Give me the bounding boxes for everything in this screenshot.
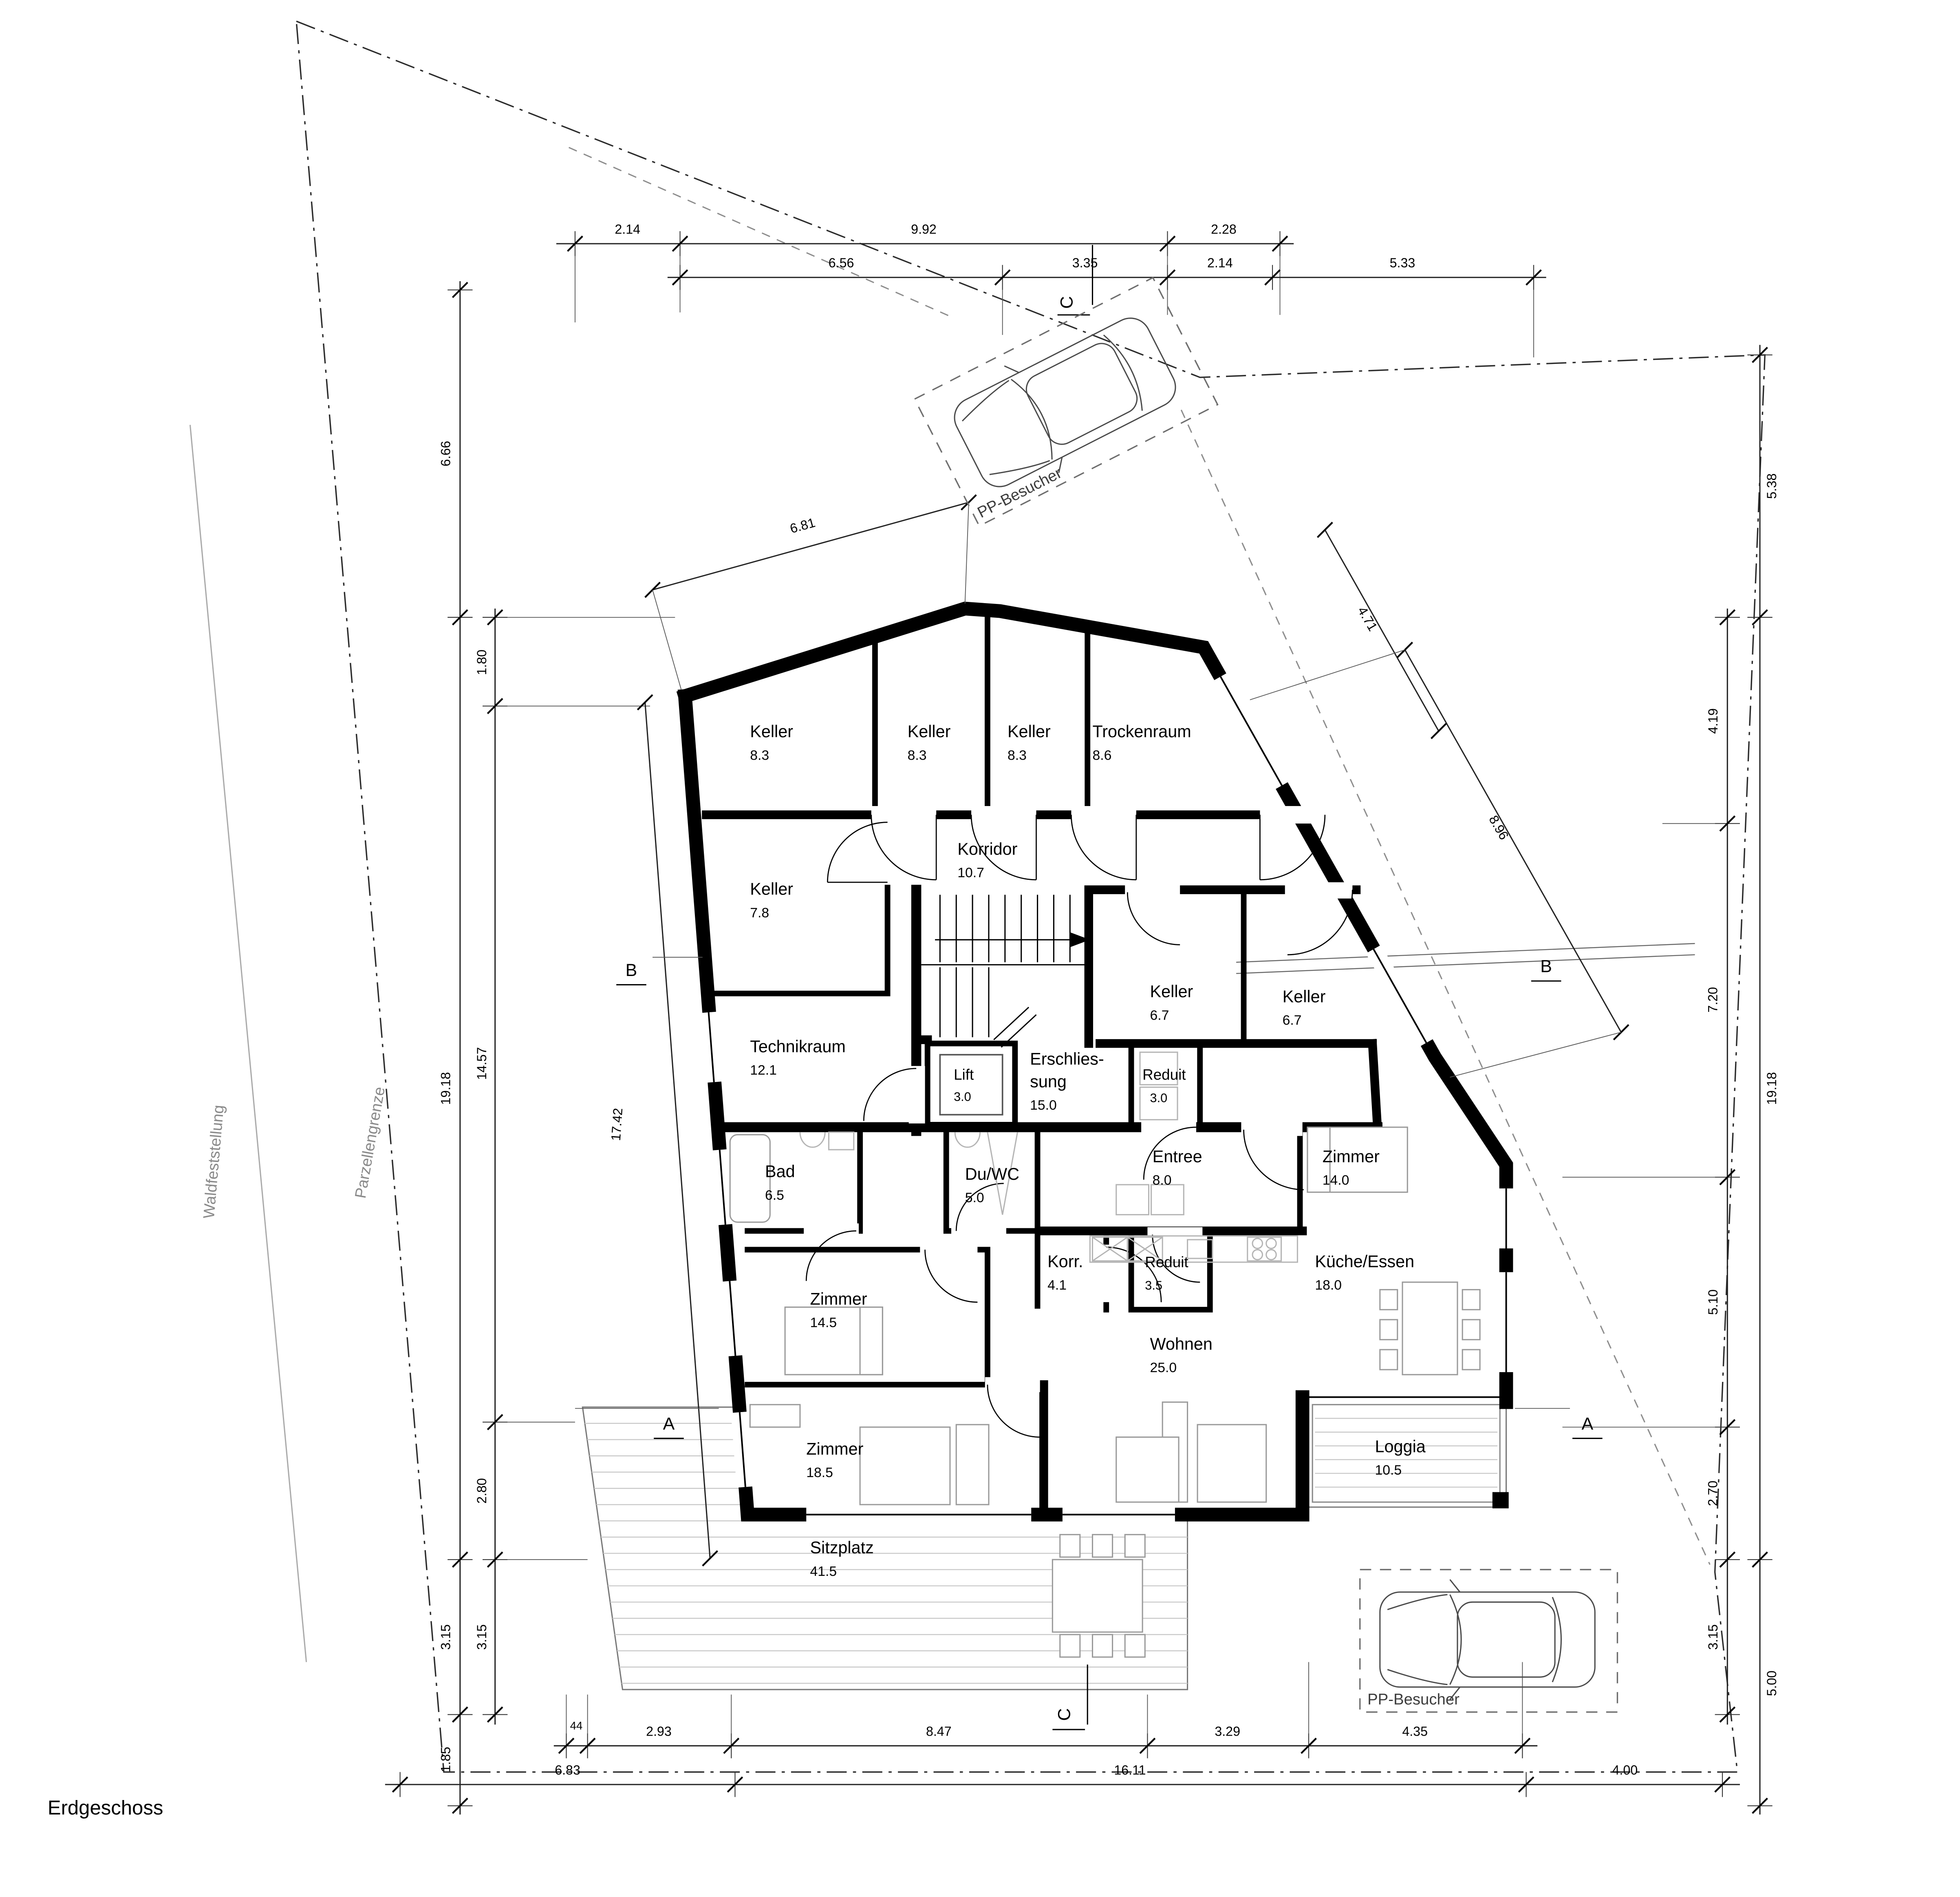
svg-text:C: C: [1054, 1708, 1074, 1721]
svg-text:4.1: 4.1: [1047, 1278, 1067, 1293]
svg-text:A: A: [663, 1414, 675, 1434]
car-bottom: [1380, 1580, 1595, 1699]
room-label-keller-1: Keller8.3: [750, 722, 793, 763]
duwc-washbasin: [955, 1132, 980, 1147]
room-label-korridor: Korridor10.7: [957, 840, 1017, 881]
dim-bottom1-2: 8.47: [926, 1724, 952, 1738]
section-marker-a-right: A: [1515, 1408, 1603, 1439]
room-label-technikraum: Technikraum12.1: [750, 1037, 846, 1078]
bath-walls: [747, 1127, 1037, 1306]
dim-bottom2-1: 16.11: [1114, 1763, 1146, 1777]
room-label-keller-3: Keller8.3: [1008, 722, 1051, 763]
svg-text:Erschlies-: Erschlies-: [1030, 1050, 1104, 1069]
bathtub: [730, 1135, 770, 1222]
svg-text:Wohnen: Wohnen: [1150, 1335, 1213, 1353]
room-label-reduit-35: Reduit3.5: [1145, 1254, 1188, 1292]
svg-text:Sitzplatz: Sitzplatz: [810, 1538, 873, 1557]
room-label-keller-2: Keller8.3: [908, 722, 951, 763]
cellar-partitions: [875, 614, 1087, 815]
svg-text:Entree: Entree: [1153, 1147, 1202, 1166]
svg-text:6.7: 6.7: [1283, 1013, 1302, 1028]
keller78-walls: [706, 819, 888, 994]
forest-label: Waldfeststellung: [200, 1104, 227, 1219]
dim-top1-1: 9.92: [911, 222, 937, 236]
bed-zimmer185: [860, 1427, 950, 1505]
desk-zimmer185: [750, 1405, 800, 1427]
svg-text:C: C: [1057, 296, 1076, 309]
svg-text:Bad: Bad: [765, 1162, 795, 1181]
svg-text:8.0: 8.0: [1153, 1172, 1172, 1188]
svg-text:Reduit: Reduit: [1145, 1254, 1188, 1270]
dim-right-inner-0: 4.19: [1706, 708, 1720, 734]
lift-car: [940, 1055, 1002, 1115]
access-dashed-line: [1181, 410, 1710, 1564]
svg-text:Korr.: Korr.: [1047, 1252, 1083, 1271]
car-top: [942, 300, 1188, 505]
dim-right-inner-4: 3.15: [1706, 1624, 1720, 1650]
room-label-trockenraum: Trockenraum8.6: [1092, 722, 1191, 763]
svg-text:6.5: 6.5: [765, 1188, 784, 1203]
svg-text:Technikraum: Technikraum: [750, 1037, 846, 1056]
sitzplatz-label: Sitzplatz 41.5: [810, 1538, 873, 1579]
page-title: Erdgeschoss: [48, 1797, 163, 1819]
svg-text:10.7: 10.7: [957, 865, 984, 881]
svg-text:Keller: Keller: [1150, 982, 1193, 1001]
dim-bottom1-3: 3.29: [1215, 1724, 1240, 1738]
dim-right-diag-long: 8.96: [1486, 813, 1512, 842]
dim-left-outer-3: 1.85: [438, 1747, 453, 1772]
svg-text:14.5: 14.5: [810, 1315, 837, 1331]
svg-text:12.1: 12.1: [750, 1062, 777, 1078]
entree-closet-2: [1151, 1185, 1184, 1215]
windows: [700, 672, 1515, 1523]
dim-right-outer-2: 5.00: [1764, 1670, 1779, 1696]
svg-text:B: B: [1540, 957, 1552, 976]
dim-bottom1-0: 44: [570, 1719, 583, 1732]
room-label-reduit-30: Reduit3.0: [1142, 1066, 1186, 1105]
svg-text:8.3: 8.3: [750, 747, 769, 763]
dim-left-inner-3: 3.15: [474, 1624, 489, 1650]
section-marker-c-bottom: C: [1052, 1665, 1087, 1730]
svg-text:8.3: 8.3: [908, 747, 927, 763]
svg-text:5.0: 5.0: [965, 1190, 984, 1205]
dim-top2-1: 3.35: [1072, 256, 1098, 270]
dim-left-outer-1: 19.18: [438, 1072, 453, 1105]
svg-text:Keller: Keller: [908, 722, 951, 741]
room-label-keller-67b: Keller6.7: [1283, 987, 1326, 1028]
svg-text:41.5: 41.5: [810, 1564, 837, 1579]
dim-bottom1-4: 4.35: [1402, 1724, 1428, 1738]
wardrobe-zimmer185: [956, 1425, 989, 1505]
staircase: [921, 895, 1090, 1047]
bad-washbasin: [800, 1132, 825, 1147]
svg-text:Loggia: Loggia: [1375, 1437, 1426, 1456]
dim-right-inner-2: 5.10: [1706, 1289, 1720, 1315]
svg-text:3.0: 3.0: [1150, 1091, 1168, 1105]
dim-top2-2: 2.14: [1207, 256, 1233, 270]
section-marker-b-left: B: [616, 957, 703, 985]
svg-text:15.0: 15.0: [1030, 1097, 1057, 1113]
svg-text:18.5: 18.5: [806, 1465, 833, 1481]
room-label-entree: Entree8.0: [1153, 1147, 1202, 1188]
svg-text:A: A: [1582, 1414, 1594, 1434]
dim-right-inner-3: 2.70: [1706, 1481, 1720, 1506]
svg-text:14.0: 14.0: [1323, 1172, 1349, 1188]
svg-text:3.0: 3.0: [954, 1090, 971, 1104]
korr-reduit35-walls: [1106, 1235, 1210, 1310]
svg-text:Keller: Keller: [1283, 987, 1326, 1006]
dim-left-inner-2: 2.80: [474, 1478, 489, 1504]
terrace-table: [1052, 1560, 1142, 1632]
dim-left-diag: 17.42: [609, 1108, 626, 1141]
loggia-deck: Loggia 10.5: [1307, 1402, 1509, 1509]
dim-right-outer-0: 5.38: [1764, 474, 1779, 499]
floor-plan-drawing: Waldfeststellung Parzellengrenze Sitzpla…: [0, 0, 1960, 1897]
svg-text:Zimmer: Zimmer: [806, 1439, 863, 1458]
svg-text:3.5: 3.5: [1145, 1279, 1162, 1293]
room-label-keller-78: Keller7.8: [750, 880, 793, 921]
svg-text:6.7: 6.7: [1150, 1007, 1169, 1023]
svg-text:8.6: 8.6: [1092, 747, 1111, 763]
svg-text:Korridor: Korridor: [957, 840, 1017, 859]
svg-text:8.3: 8.3: [1008, 747, 1027, 763]
svg-text:Zimmer: Zimmer: [1323, 1147, 1380, 1166]
dim-top-diag: 6.81: [788, 515, 817, 536]
forest-delineation-line: [190, 425, 306, 1662]
svg-text:10.5: 10.5: [1375, 1463, 1402, 1478]
dim-right-inner-1: 7.20: [1706, 987, 1720, 1013]
svg-text:25.0: 25.0: [1150, 1360, 1177, 1375]
entree-closet-1: [1116, 1185, 1149, 1215]
terrace-table-set: [1052, 1535, 1145, 1657]
svg-text:7.8: 7.8: [750, 905, 769, 921]
retaining-wall-line-2: [1236, 955, 1695, 974]
svg-text:Keller: Keller: [750, 722, 793, 741]
pp-besucher-label-top: PP-Besucher: [974, 464, 1065, 522]
svg-text:Lift: Lift: [954, 1066, 974, 1083]
room-label-zimmer-185: Zimmer18.5: [806, 1439, 863, 1480]
dining-table-set: [1380, 1282, 1480, 1375]
room-label-kueche: Küche/Essen18.0: [1315, 1252, 1414, 1293]
svg-text:B: B: [626, 961, 637, 980]
dim-right-diag-short: 4.71: [1355, 604, 1380, 633]
dim-left-outer-0: 6.66: [438, 441, 453, 467]
room-label-korr: Korr.4.1: [1047, 1252, 1083, 1293]
svg-text:Keller: Keller: [750, 880, 793, 899]
svg-text:sung: sung: [1030, 1072, 1067, 1091]
sofa-2: [1116, 1437, 1179, 1502]
dim-left-outer-2: 3.15: [438, 1624, 453, 1650]
svg-text:Küche/Essen: Küche/Essen: [1315, 1252, 1414, 1271]
dim-top1-0: 2.14: [615, 222, 640, 236]
room-label-erschliessung: Erschlies-sung15.0: [1030, 1050, 1104, 1113]
floor-plan-page: Waldfeststellung Parzellengrenze Sitzpla…: [0, 0, 1960, 1897]
dim-top2-0: 6.56: [829, 256, 854, 270]
bad-wc: [829, 1132, 853, 1150]
svg-text:Trockenraum: Trockenraum: [1092, 722, 1191, 741]
dim-right-outer-1: 19.18: [1764, 1072, 1779, 1105]
parcel-boundary-label: Parzellengrenze: [352, 1086, 388, 1200]
visitor-parking-bottom: PP-Besucher: [1360, 1570, 1618, 1712]
dim-left-inner-0: 1.80: [474, 650, 489, 675]
svg-text:Reduit: Reduit: [1142, 1066, 1186, 1083]
dim-bottom1-1: 2.93: [646, 1724, 672, 1738]
loggia-corner-post: [1493, 1492, 1509, 1508]
svg-text:18.0: 18.0: [1315, 1278, 1342, 1293]
svg-text:Zimmer: Zimmer: [810, 1289, 867, 1308]
dim-bottom2-0: 6.83: [555, 1763, 580, 1777]
svg-text:Du/WC: Du/WC: [965, 1165, 1019, 1183]
room-label-wohnen: Wohnen25.0: [1150, 1335, 1213, 1375]
pp-besucher-label-bottom: PP-Besucher: [1367, 1691, 1460, 1708]
sofa-1: [1197, 1425, 1266, 1502]
dim-bottom2-2: 4.00: [1612, 1763, 1638, 1777]
dim-left-inner-1: 14.57: [474, 1047, 489, 1080]
lift: Lift 3.0: [940, 1055, 1002, 1115]
dim-top1-2: 2.28: [1211, 222, 1237, 236]
dim-top2-3: 5.33: [1390, 256, 1415, 270]
room-label-keller-67a: Keller6.7: [1150, 982, 1193, 1023]
svg-text:Keller: Keller: [1008, 722, 1051, 741]
